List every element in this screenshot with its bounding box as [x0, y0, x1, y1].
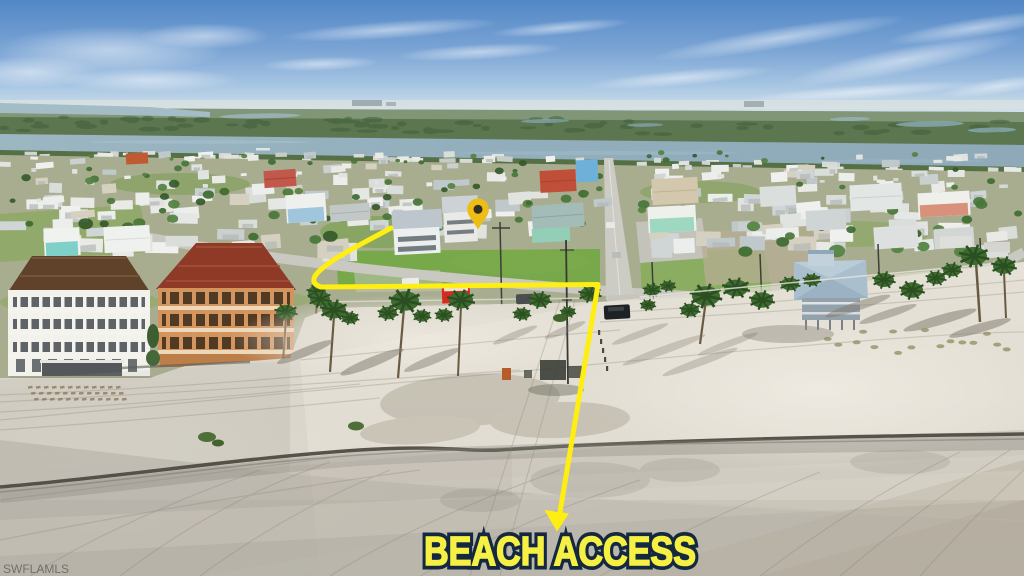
svg-text:SWFLAMLS: SWFLAMLS	[3, 562, 69, 576]
svg-text:BEACH ACCESS: BEACH ACCESS	[424, 528, 696, 574]
